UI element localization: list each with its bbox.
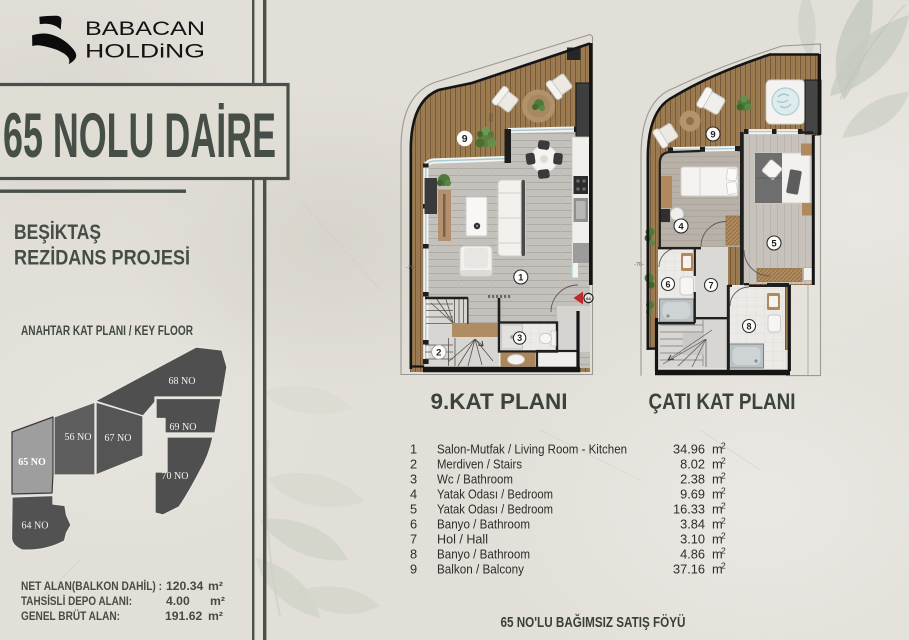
svg-text:2: 2: [721, 531, 726, 541]
svg-text:Banyo / Bathroom: Banyo / Bathroom: [437, 517, 530, 532]
svg-text:9: 9: [710, 129, 715, 140]
svg-text:16.33: 16.33: [673, 502, 705, 517]
svg-text:-70-: -70-: [406, 265, 416, 271]
svg-text:3: 3: [410, 472, 417, 487]
svg-text:9.KAT PLANI: 9.KAT PLANI: [431, 389, 568, 414]
svg-text:65 NOLU DAİRE: 65 NOLU DAİRE: [3, 101, 276, 171]
svg-text:8.02: 8.02: [680, 457, 705, 472]
svg-text:9.69: 9.69: [680, 487, 705, 502]
svg-text:280: 280: [489, 113, 495, 122]
svg-text:9: 9: [462, 133, 468, 145]
svg-text:3: 3: [517, 333, 522, 343]
svg-text:2: 2: [721, 471, 726, 481]
svg-text:70 NO: 70 NO: [162, 471, 189, 482]
svg-text:Hol / Hall: Hol / Hall: [437, 532, 488, 547]
svg-text:34.96: 34.96: [673, 442, 705, 457]
svg-text:Salon-Mutfak / Living Room - K: Salon-Mutfak / Living Room - Kitchen: [437, 442, 627, 457]
svg-text:ANAHTAR KAT PLANI / KEY FLOOR: ANAHTAR KAT PLANI / KEY FLOOR: [21, 323, 193, 338]
svg-text:6: 6: [410, 517, 417, 532]
svg-text:2: 2: [721, 561, 726, 571]
svg-text:4: 4: [410, 487, 417, 502]
svg-text:NET ALAN(BALKON DAHİL) :: NET ALAN(BALKON DAHİL) :: [21, 578, 162, 593]
svg-text:65 NO: 65 NO: [18, 457, 46, 468]
svg-text:ÇATI KAT PLANI: ÇATI KAT PLANI: [649, 389, 796, 414]
svg-text:2: 2: [721, 501, 726, 511]
svg-text:4: 4: [678, 221, 684, 232]
svg-text:5: 5: [410, 502, 417, 517]
svg-text:Merdiven / Stairs: Merdiven / Stairs: [437, 457, 522, 472]
svg-text:3.10: 3.10: [680, 532, 705, 547]
svg-text:2: 2: [721, 546, 726, 556]
svg-text:3.84: 3.84: [680, 517, 705, 532]
svg-text:65 NO'LU BAĞIMSIZ SATIŞ FÖYÜ: 65 NO'LU BAĞIMSIZ SATIŞ FÖYÜ: [501, 613, 686, 631]
svg-text:120.34: 120.34: [166, 579, 203, 593]
svg-text:Yatak Odası / Bedroom: Yatak Odası / Bedroom: [437, 502, 553, 517]
svg-text:56 NO: 56 NO: [65, 432, 92, 443]
svg-text:2.38: 2.38: [680, 472, 705, 487]
svg-text:2: 2: [721, 486, 726, 496]
svg-text:HOLDiNG: HOLDiNG: [85, 41, 205, 63]
svg-text:7: 7: [410, 532, 417, 547]
svg-text:67 NO: 67 NO: [105, 433, 132, 444]
svg-text:Balkon / Balcony: Balkon / Balcony: [437, 562, 525, 577]
svg-text:GENEL BRÜT ALAN:: GENEL BRÜT ALAN:: [21, 608, 120, 623]
svg-text:m²: m²: [208, 609, 223, 623]
svg-text:9: 9: [410, 562, 417, 577]
svg-text:68 NO: 68 NO: [169, 376, 196, 387]
svg-text:TAHSİSLİ DEPO ALANI:: TAHSİSLİ DEPO ALANI:: [21, 593, 132, 608]
svg-text:BABACAN: BABACAN: [85, 18, 205, 40]
svg-text:4.00: 4.00: [166, 594, 190, 608]
svg-text:m²: m²: [208, 579, 223, 593]
svg-text:2: 2: [721, 441, 726, 451]
svg-text:Wc / Bathroom: Wc / Bathroom: [437, 472, 513, 487]
svg-text:-70-: -70-: [634, 262, 644, 268]
svg-text:7: 7: [708, 280, 713, 290]
svg-text:2: 2: [721, 456, 726, 466]
svg-text:4.86: 4.86: [680, 547, 705, 562]
svg-text:8: 8: [746, 321, 751, 331]
svg-text:2: 2: [721, 516, 726, 526]
svg-text:BEŞİKTAŞ: BEŞİKTAŞ: [14, 221, 101, 244]
svg-text:37.16: 37.16: [673, 562, 705, 577]
svg-text:m²: m²: [210, 594, 225, 608]
svg-text:Banyo / Bathroom: Banyo / Bathroom: [437, 547, 530, 562]
svg-text:64 NO: 64 NO: [22, 521, 49, 532]
svg-text:8: 8: [410, 547, 417, 562]
svg-text:64: 64: [586, 296, 591, 301]
svg-text:2: 2: [410, 457, 417, 472]
svg-text:191.62: 191.62: [165, 609, 202, 623]
svg-text:69 NO: 69 NO: [170, 422, 197, 433]
svg-text:1: 1: [410, 442, 417, 457]
svg-text:5: 5: [771, 238, 777, 249]
svg-text:6: 6: [665, 279, 670, 289]
svg-text:REZİDANS PROJESİ: REZİDANS PROJESİ: [14, 247, 190, 270]
svg-text:Yatak Odası / Bedroom: Yatak Odası / Bedroom: [437, 487, 553, 502]
svg-text:2: 2: [436, 347, 441, 358]
svg-text:1: 1: [518, 272, 524, 283]
